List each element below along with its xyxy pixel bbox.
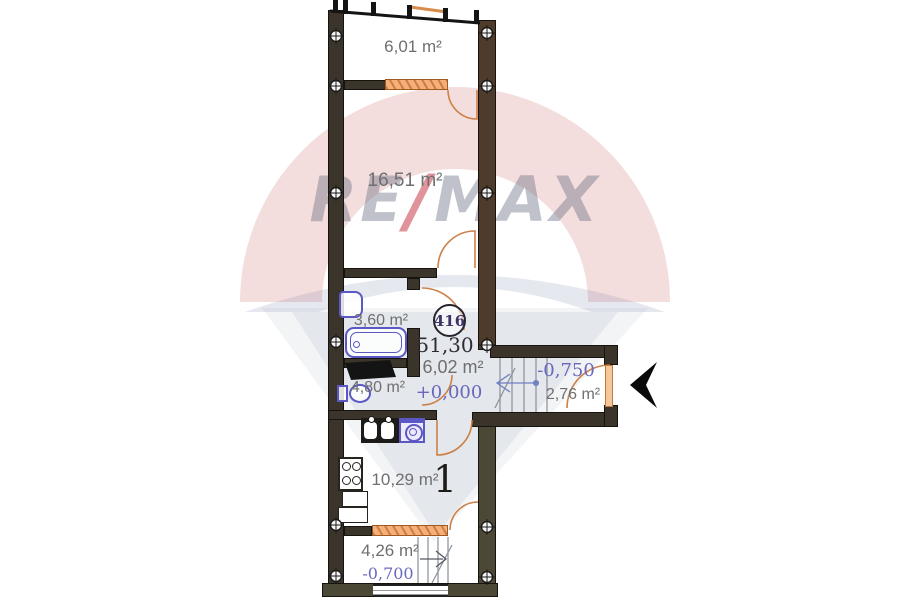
area-label-wc: 4,80 m² xyxy=(351,379,405,397)
level-mark-hallway: +0,000 xyxy=(416,382,483,403)
floor-plan: RE/MAX xyxy=(0,0,922,615)
door-arc-kitchen xyxy=(437,420,472,455)
door-leaf-bath-wc xyxy=(345,360,396,380)
stairs-direction-arrow xyxy=(497,374,538,392)
level-mark-landing: -0,750 xyxy=(537,360,595,381)
area-label-balcony-bottom: 4,26 m² xyxy=(361,541,419,561)
stairs-balcony xyxy=(418,537,452,583)
level-mark-balcony-bottom: -0,700 xyxy=(362,564,413,583)
plan-linework xyxy=(0,0,922,615)
door-arc-living-room xyxy=(438,231,475,268)
wall-joint-markers xyxy=(328,25,495,585)
area-label-living-room: 16,51 m² xyxy=(368,170,443,192)
plan-layer: 6,01 m² 16,51 m² 3,60 m² 4,80 m² 416 51,… xyxy=(0,0,922,615)
unit-number: 416 xyxy=(434,312,465,330)
entrance-arrow-icon xyxy=(630,362,657,408)
area-label-balcony-top: 6,01 m² xyxy=(384,37,442,57)
area-label-landing: 2,76 m² xyxy=(546,386,600,404)
total-area-label: 51,30 xyxy=(416,333,473,357)
door-arc-kitchen-balcony xyxy=(450,502,478,530)
area-label-kitchen: 10,29 m² xyxy=(371,470,438,490)
railing-line xyxy=(330,11,480,23)
area-label-bathroom: 3,60 m² xyxy=(354,312,408,330)
area-label-hallway: 6,02 m² xyxy=(422,357,483,378)
railing-window xyxy=(410,7,447,12)
room-number-kitchen: 1 xyxy=(433,458,457,501)
door-arc-balcony-top xyxy=(448,90,477,119)
